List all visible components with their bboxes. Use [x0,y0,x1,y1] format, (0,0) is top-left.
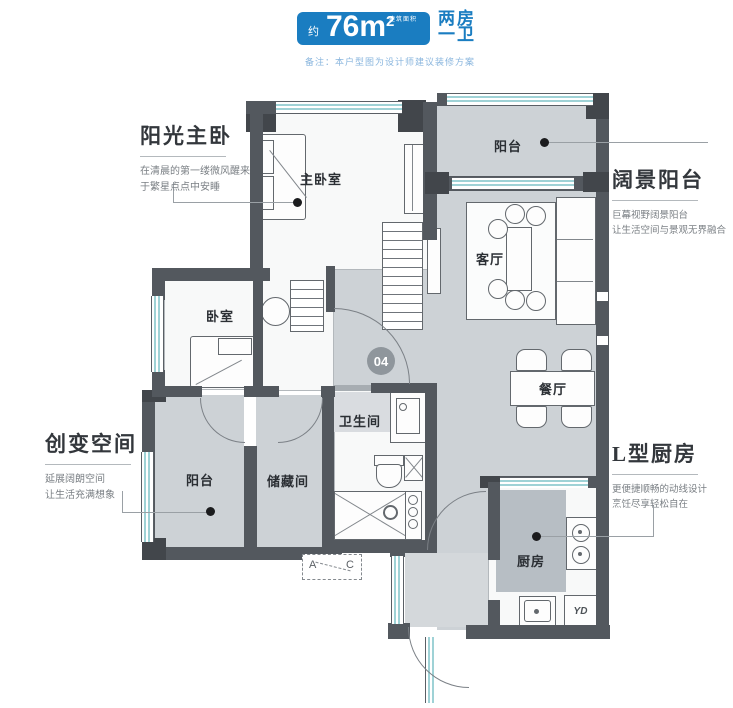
chair-icon [561,406,592,428]
room-label-storage: 储藏间 [267,471,309,490]
wall-pier [398,100,426,132]
callout-desc: 让生活充满想象 [45,488,137,504]
coffee-table-icon [506,227,532,291]
chair-icon [516,349,547,371]
callout-rule [140,156,226,157]
callout-desc: 烹饪尽享轻松自在 [612,497,707,512]
room-label-living: 客厅 [476,249,504,268]
area-value: 76m2 [326,10,394,44]
wall-segment [326,266,335,312]
callout-flex-space: 创变空间 延展阔朗空间 让生活充满想象 [45,428,137,504]
washer-knob [399,403,407,411]
disclaimer-note: 备注：本户型图为设计师建议装修方案 [270,55,510,68]
wall-pier [425,172,449,194]
closet-shelves-icon [382,222,423,330]
callout-rule [612,474,698,475]
toilet-bowl-icon [376,464,402,488]
chair-icon [561,349,592,371]
callout-line [173,202,297,203]
wall-pier [583,172,609,192]
pouf-icon [505,204,525,224]
window [452,177,574,190]
window [276,101,402,114]
callout-line [122,512,210,513]
vent-box-icon [404,455,423,481]
callout-rule [612,200,698,201]
window [151,296,164,372]
callout-dot [540,138,549,147]
room-label-balcony-bottom: 阳台 [186,470,214,489]
callout-kitchen: L型厨房 更便捷顺畅的动线设计 烹饪尽享轻松自在 [612,438,707,512]
wall-segment [244,446,257,550]
callout-title: 创变空间 [45,428,137,458]
callout-desc: 让生活空间与景观无界融合 [612,223,726,238]
callout-desc: 延展阔朗空间 [45,472,137,488]
room-label-master-bedroom: 主卧室 [300,169,342,188]
pouf-icon [488,219,508,239]
callout-title: L型厨房 [612,438,707,468]
bottle-icon [408,495,418,505]
room-label-bathroom: 卫生间 [339,411,381,430]
callout-line [548,142,708,143]
wardrobe-line [412,145,413,211]
burner-dot [578,552,582,556]
window [391,556,404,624]
area-unit-note: 建筑面积 [389,14,417,23]
kitchen-counter-area [496,490,566,592]
faucet-dot [534,609,539,614]
callout-dot [293,198,302,207]
callout-desc: 更便捷顺畅的动线设计 [612,482,707,497]
pillow-icon [218,338,252,355]
wardrobe-icon [404,144,424,214]
wall-segment [250,102,263,274]
wall-segment [322,390,334,550]
burner-dot [578,530,582,534]
wall-segment [253,272,263,390]
yd-appliance-icon: YD [564,595,597,627]
window [500,477,588,488]
callout-desc: 巨幕视野阔景阳台 [612,208,726,223]
pouf-icon [526,291,546,311]
wall-segment [466,625,610,639]
wall-segment [244,386,279,397]
sofa-icon [556,197,596,325]
callout-dot [532,532,541,541]
callout-title: 阳光主卧 [140,120,250,150]
callout-desc: 在清晨的第一缕微风醒来 [140,164,250,180]
wall-segment [596,476,609,639]
floor-plan-page: 约 76m2 建筑面积 两房 一卫 备注：本户型图为设计师建议装修方案 [0,0,733,708]
bottle-icon [408,519,418,529]
entrance-door-arc [408,627,469,688]
window [141,452,154,542]
room-label-balcony-top: 阳台 [494,136,522,155]
area-badge: 约 76m2 建筑面积 [297,12,430,45]
layout-type-label: 两房 一卫 [438,11,476,43]
bottle-icon [408,507,418,517]
room-label-bedroom: 卧室 [206,306,234,325]
callout-desc: 于繁星点点中安睡 [140,180,250,196]
callout-master: 阳光主卧 在清晨的第一缕微风醒来 于繁星点点中安睡 [140,120,250,196]
unit-number-badge: 04 [367,347,395,375]
callout-dot [206,507,215,516]
vanity-stool-icon [261,297,290,326]
wall-segment [322,540,437,553]
room-label-dining: 餐厅 [539,379,567,398]
hall-shelf-icon [290,280,324,332]
wall-segment [371,383,437,393]
layout-type-line2: 一卫 [438,27,476,43]
wall-vent-slit [597,336,608,345]
callout-title: 阔景阳台 [612,164,726,194]
wall-segment [488,482,500,560]
wall-segment [423,102,437,240]
ac-unit-marker: A C [302,554,362,580]
callout-line [541,536,654,537]
wall-segment [596,93,609,485]
sofa-cushion-line [557,239,593,240]
sofa-cushion-line [557,281,593,282]
wall-segment [152,386,202,397]
entry-porch-floor [405,553,488,627]
wall-segment [388,623,410,639]
window [447,93,593,106]
pouf-icon [526,206,546,226]
area-approx-label: 约 [308,23,319,39]
room-label-kitchen: 厨房 [517,551,545,570]
pouf-icon [505,290,525,310]
chair-icon [516,406,547,428]
wall-vent-slit [597,292,608,301]
callout-rule [45,464,131,465]
bathroom-sliding-door [334,385,372,391]
drain-icon [383,505,398,520]
callout-view-balcony: 阔景阳台 巨幕视野阔景阳台 让生活空间与景观无界融合 [612,164,726,238]
